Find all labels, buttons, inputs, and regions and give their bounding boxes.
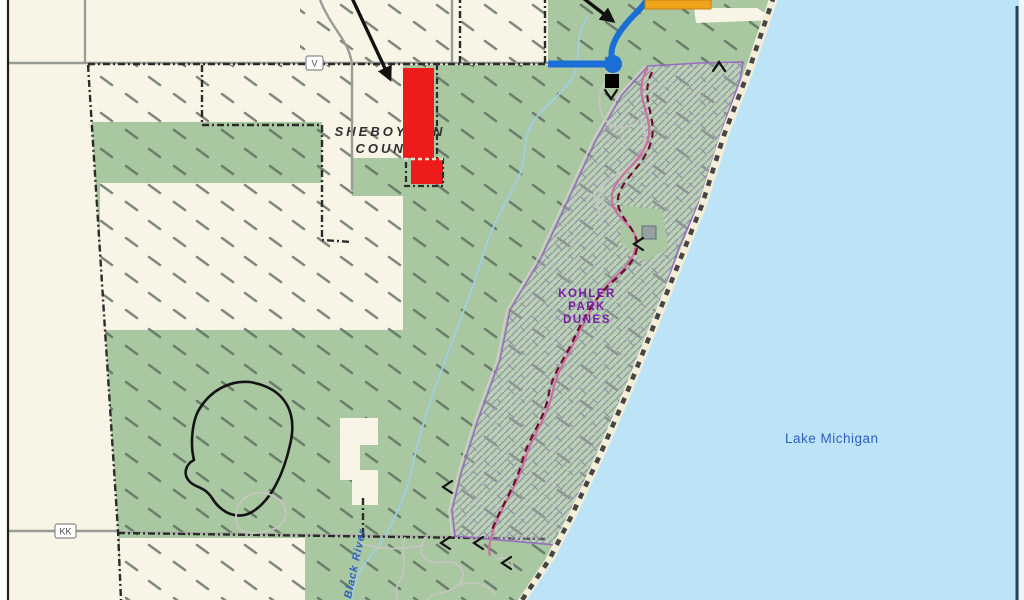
road-label-v-text: V bbox=[311, 59, 317, 69]
map-canvas: SHEBOYGAN COUNTY bbox=[0, 0, 1024, 600]
park-label-line3: DUNES bbox=[563, 314, 611, 326]
building-icon bbox=[642, 226, 656, 239]
structure-icon bbox=[605, 74, 619, 88]
map-margin-right bbox=[1019, 0, 1024, 600]
park-label-line1: KOHLER bbox=[558, 288, 616, 300]
road-label-v: V bbox=[306, 56, 323, 70]
road-label-kk-text: KK bbox=[59, 527, 71, 537]
map-margin-left bbox=[0, 0, 7, 600]
red-parcel-north bbox=[403, 68, 434, 158]
red-parcel-south bbox=[411, 158, 443, 184]
river-pond-dot bbox=[604, 55, 622, 73]
orange-parcel-highlight bbox=[645, 0, 711, 9]
lake-label: Lake Michigan bbox=[785, 431, 879, 446]
park-label-line2: PARK bbox=[568, 301, 606, 313]
road-label-kk: KK bbox=[55, 524, 76, 538]
